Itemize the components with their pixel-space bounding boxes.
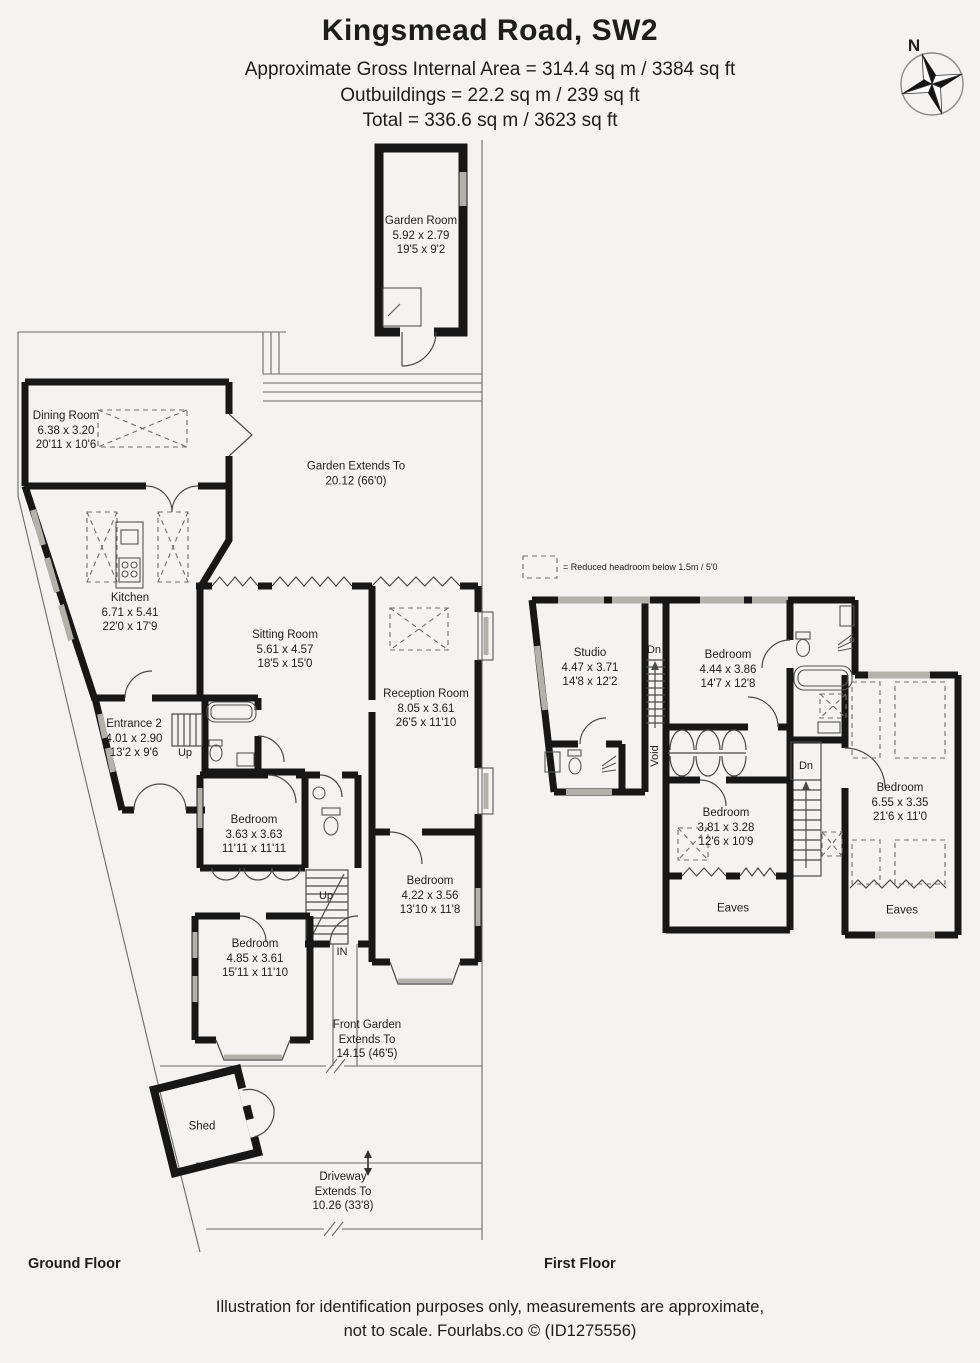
room-label-bedroom-381: Bedroom 3.81 x 3.28 12'6 x 10'9 (698, 806, 755, 850)
floorplan-canvas (0, 0, 980, 1363)
first-floor-shower-room (545, 718, 622, 792)
room-label-sitting-room: Sitting Room 5.61 x 4.57 18'5 x 15'0 (252, 628, 318, 672)
disclaimer-line-2: not to scale. Fourlabs.co © (ID1275556) (0, 1322, 980, 1341)
main-stairs (305, 832, 372, 962)
stairs-up-entrance-label: Up (178, 746, 192, 760)
page-title: Kingsmead Road, SW2 (0, 14, 980, 48)
first-floor-title: First Floor (544, 1256, 616, 1272)
room-label-entrance-2: Entrance 2 4.01 x 2.90 13'2 x 9'6 (106, 717, 163, 761)
legend-reduced-headroom: = Reduced headroom below 1.5m / 5'0 (563, 562, 718, 572)
outbuildings-line: Outbuildings = 22.2 sq m / 239 sq ft (0, 85, 980, 107)
legend-swatch (523, 556, 557, 578)
room-label-bedroom-655: Bedroom 6.55 x 3.35 21'6 x 11'0 (872, 781, 929, 825)
annotation-garden-extends: Garden Extends To 20.12 (66'0) (307, 459, 405, 488)
gross-area-line: Approximate Gross Internal Area = 314.4 … (0, 59, 980, 81)
room-label-dining-room: Dining Room 6.38 x 3.20 20'11 x 10'6 (33, 409, 99, 453)
room-label-reception-room: Reception Room 8.05 x 3.61 26'5 x 11'10 (383, 687, 469, 731)
stairs-up-main-label: Up (319, 889, 333, 903)
shed-outline (154, 1063, 283, 1174)
total-line: Total = 336.6 sq m / 3623 sq ft (0, 110, 980, 132)
ground-floor-title: Ground Floor (28, 1256, 121, 1272)
disclaimer-line-1: Illustration for identification purposes… (0, 1298, 980, 1317)
annotation-front-garden: Front Garden Extends To 14.15 (46'5) (333, 1018, 401, 1062)
eaves-left-label: Eaves (717, 902, 749, 917)
first-floor-stairs-void (646, 660, 665, 728)
compass-north-label: N (908, 36, 920, 56)
ground-bathroom (205, 698, 305, 772)
floorplan-page: Kingsmead Road, SW2 Approximate Gross In… (0, 0, 980, 1363)
room-label-kitchen: Kitchen 6.71 x 5.41 22'0 x 17'9 (102, 591, 159, 635)
front-door-in-label: IN (337, 945, 348, 959)
room-label-bedroom-444: Bedroom 4.44 x 3.86 14'7 x 12'8 (700, 648, 757, 692)
rear-glazing-walls (196, 577, 478, 586)
room-label-bedroom-363: Bedroom 3.63 x 3.63 11'11 x 11'11 (222, 813, 286, 857)
room-label-garden-room: Garden Room 5.92 x 2.79 19'5 x 9'2 (385, 214, 457, 258)
void-label: Void (648, 745, 662, 766)
stairs-dn-mid-label: Dn (799, 759, 813, 773)
room-label-studio: Studio 4.47 x 3.71 14'8 x 12'2 (562, 646, 619, 690)
room-label-bedroom-485: Bedroom 4.85 x 3.61 15'11 x 11'10 (222, 937, 288, 981)
annotation-driveway: Driveway Extends To 10.26 (33'8) (312, 1170, 373, 1214)
room-label-bedroom-422: Bedroom 4.22 x 3.56 13'10 x 11'8 (400, 874, 460, 918)
eaves-right-label: Eaves (886, 904, 918, 919)
room-label-shed: Shed (189, 1120, 216, 1135)
stairs-dn-top-label: Dn (647, 643, 661, 657)
